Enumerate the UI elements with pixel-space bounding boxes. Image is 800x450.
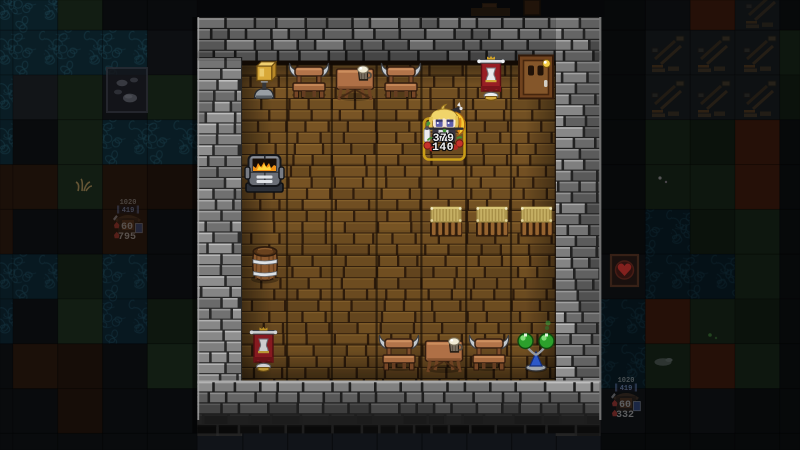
svg-text:332: 332 [616,410,634,421]
svg-text:419: 419 [620,385,633,393]
svg-text:795: 795 [118,232,136,243]
svg-text:419: 419 [122,207,135,215]
svg-text:140: 140 [432,142,454,154]
